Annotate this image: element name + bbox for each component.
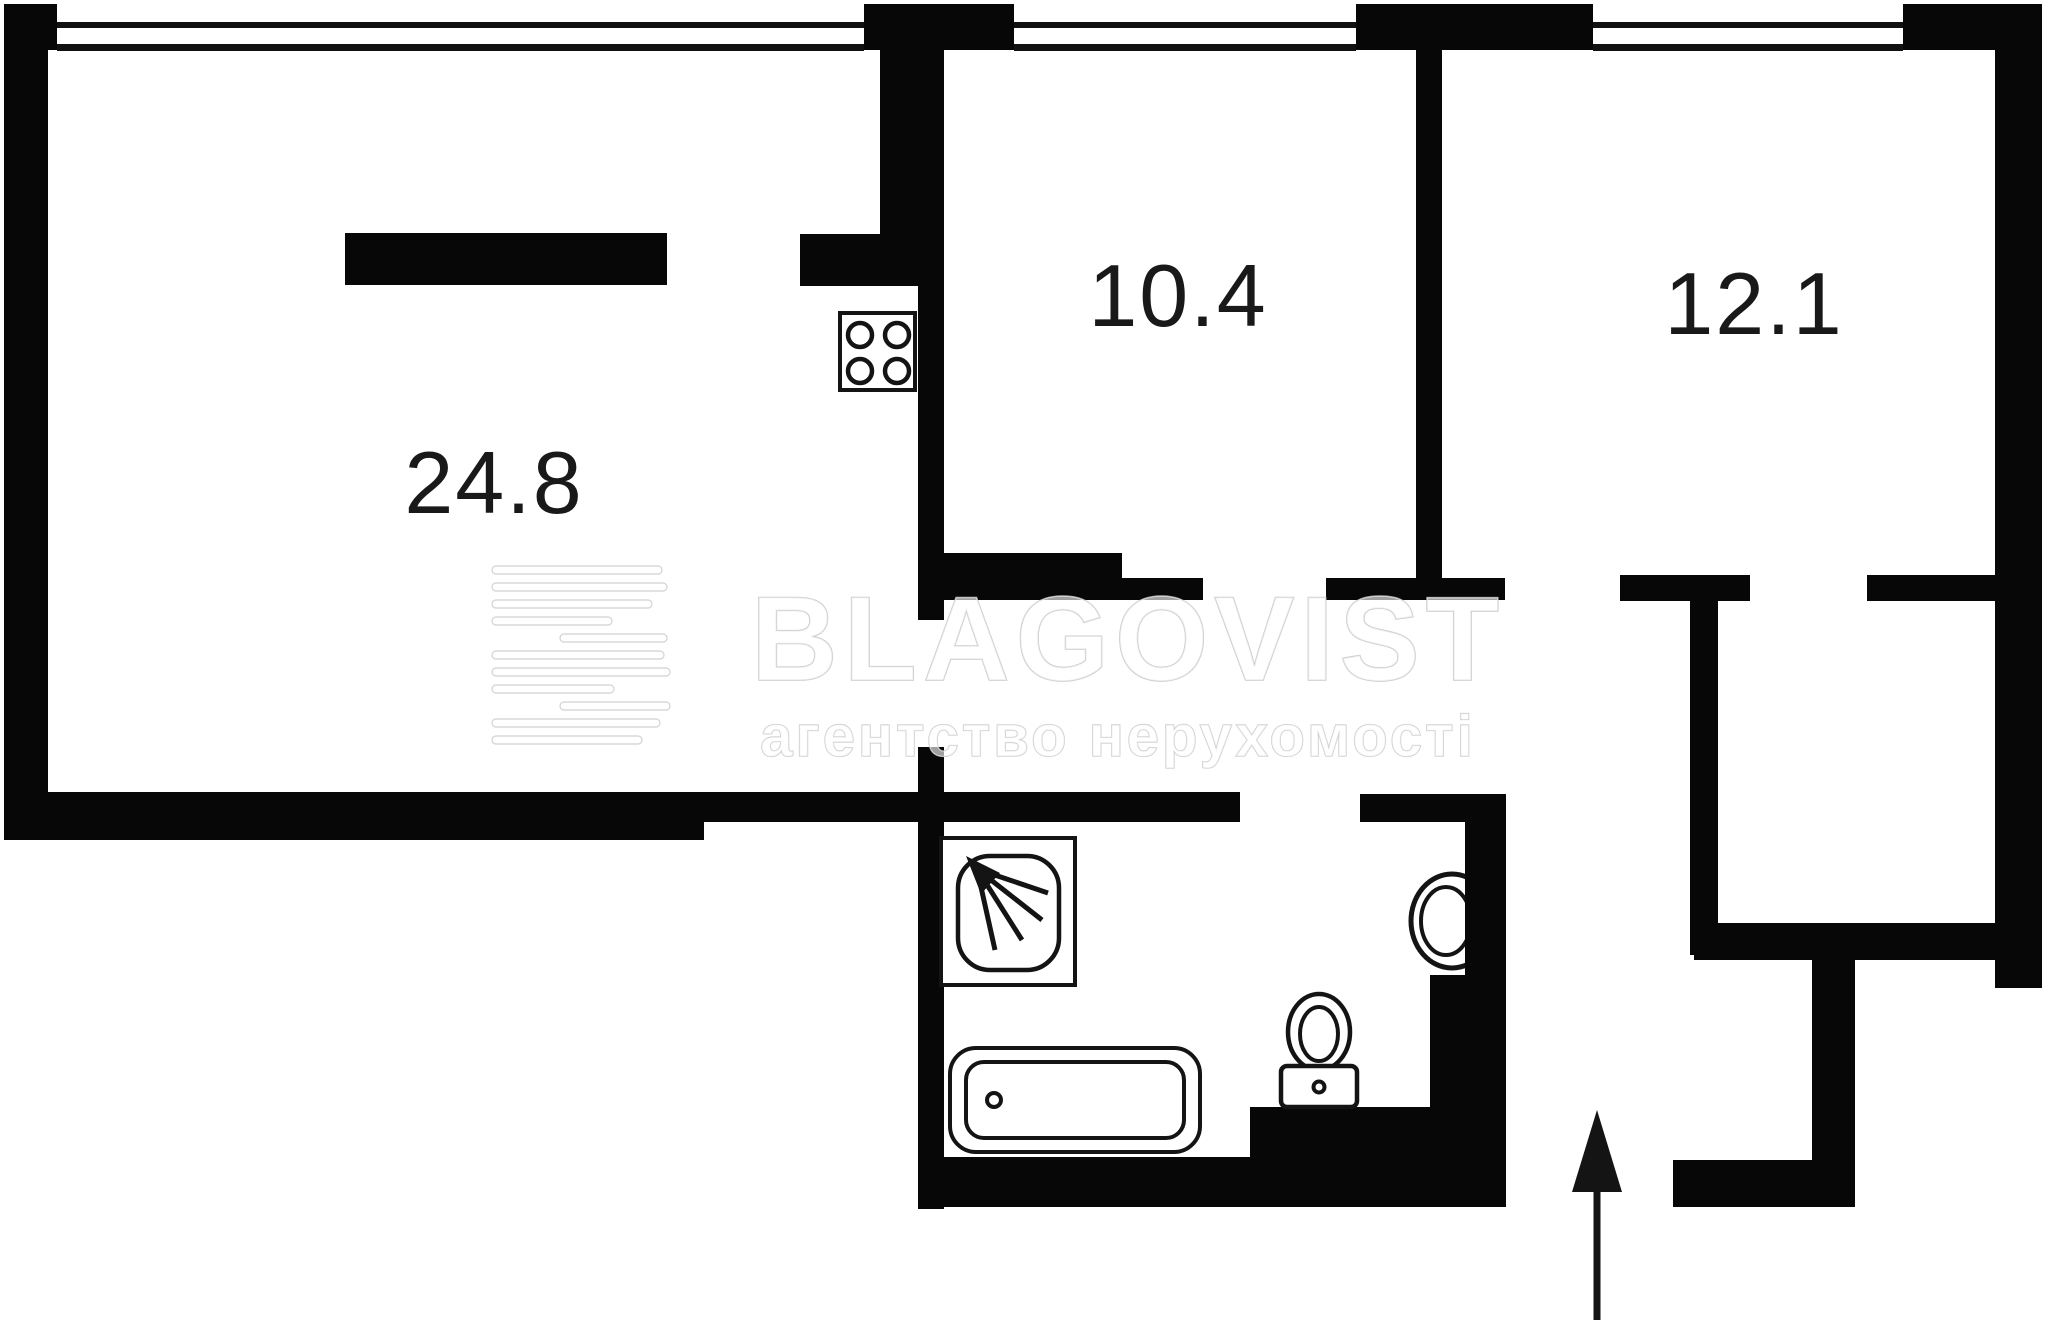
watermark-tagline: агентство нерухомості (760, 704, 1475, 769)
label-living-room: 24.8 (404, 433, 583, 532)
watermark-brand: BLAGOVIST (751, 572, 1505, 706)
shower-icon (941, 838, 1075, 985)
toilet-icon (1281, 994, 1357, 1107)
bathtub-icon (950, 1048, 1200, 1152)
window-room-right (1593, 4, 1903, 51)
left-outer-wall (4, 4, 48, 840)
window-room-center (1014, 4, 1356, 51)
window-living-room (57, 4, 864, 51)
label-room-center: 10.4 (1088, 246, 1267, 345)
divider-104-121 (1416, 48, 1442, 600)
floor-plan-canvas: 24.8 10.4 12.1 BLAGOVIST агентство нерух… (0, 0, 2048, 1329)
stove-icon (840, 313, 915, 390)
label-room-right: 12.1 (1664, 254, 1843, 353)
living-room-partition (345, 233, 667, 285)
right-outer-wall (1995, 4, 2042, 988)
